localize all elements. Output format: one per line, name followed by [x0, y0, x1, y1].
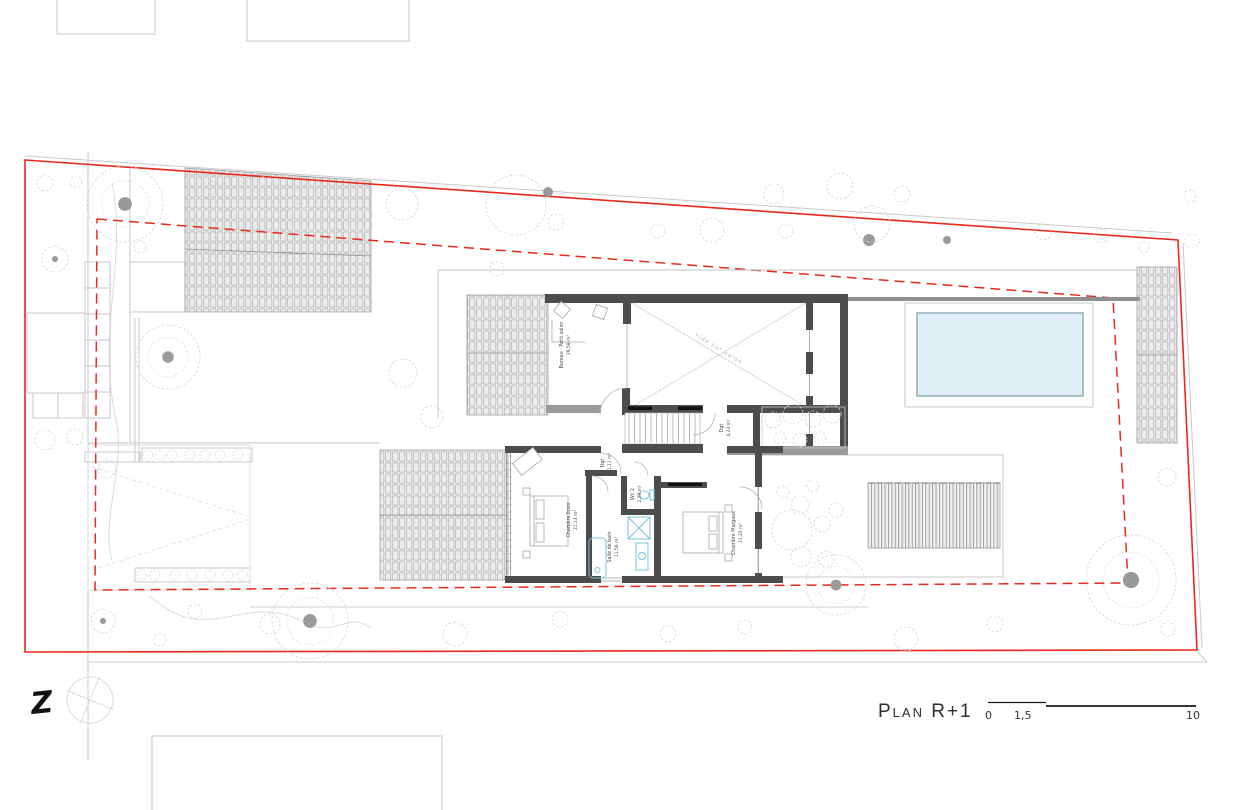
floor-plan-page: Bureau - Petit salon 29,58 m² vide sur s…	[0, 0, 1237, 810]
scale-mid: 1,5	[1014, 709, 1032, 722]
room-label-bedroom-left: Chambre Enzo	[566, 502, 572, 537]
room-area-bathroom: 11,56 m²	[614, 537, 620, 557]
swimming-pool	[905, 303, 1093, 407]
room-area-bedroom-right: 21,20 m²	[738, 523, 744, 543]
title-block: Plan R+1	[878, 701, 973, 722]
room-label-dgt-hall: Dgt	[600, 459, 606, 468]
room-area-dgt-hall: 11,11 m²	[607, 453, 613, 473]
pergola-slats	[868, 483, 1000, 548]
planter-shrubs	[137, 450, 247, 580]
room-label-void: vide sur salon	[694, 332, 744, 366]
room-label-wc: Wc 2	[630, 488, 636, 500]
glazed-wall-west	[505, 453, 512, 576]
page-title: Plan R+1	[878, 701, 973, 722]
room-area-dgt-stair: 4,23 m²	[726, 419, 732, 436]
vanity	[636, 543, 648, 570]
north-arrow: Z	[28, 667, 122, 732]
room-label-bureau: Bureau - Petit salon	[559, 322, 565, 369]
scale-bar: 0 1,5 10	[985, 703, 1200, 723]
floor-plan-svg: Bureau - Petit salon 29,58 m² vide sur s…	[0, 0, 1237, 810]
staircase	[622, 413, 703, 453]
room-label-bedroom-right: Chambre Margaux	[731, 511, 737, 555]
void-cross	[632, 303, 806, 407]
north-letter: Z	[28, 685, 56, 722]
wall-top	[545, 294, 848, 303]
room-area-wc: 2,28 m²	[637, 485, 643, 502]
room-area-bedroom-left: 21,13 m²	[573, 510, 579, 530]
scale-start: 0	[985, 709, 992, 722]
scale-end: 10	[1186, 709, 1200, 722]
compass-icon	[57, 667, 122, 732]
room-label-dgt-stair: Dgt	[719, 424, 725, 433]
room-area-bureau: 29,58 m²	[566, 335, 572, 355]
room-label-bathroom: Salle de bain	[607, 531, 613, 562]
